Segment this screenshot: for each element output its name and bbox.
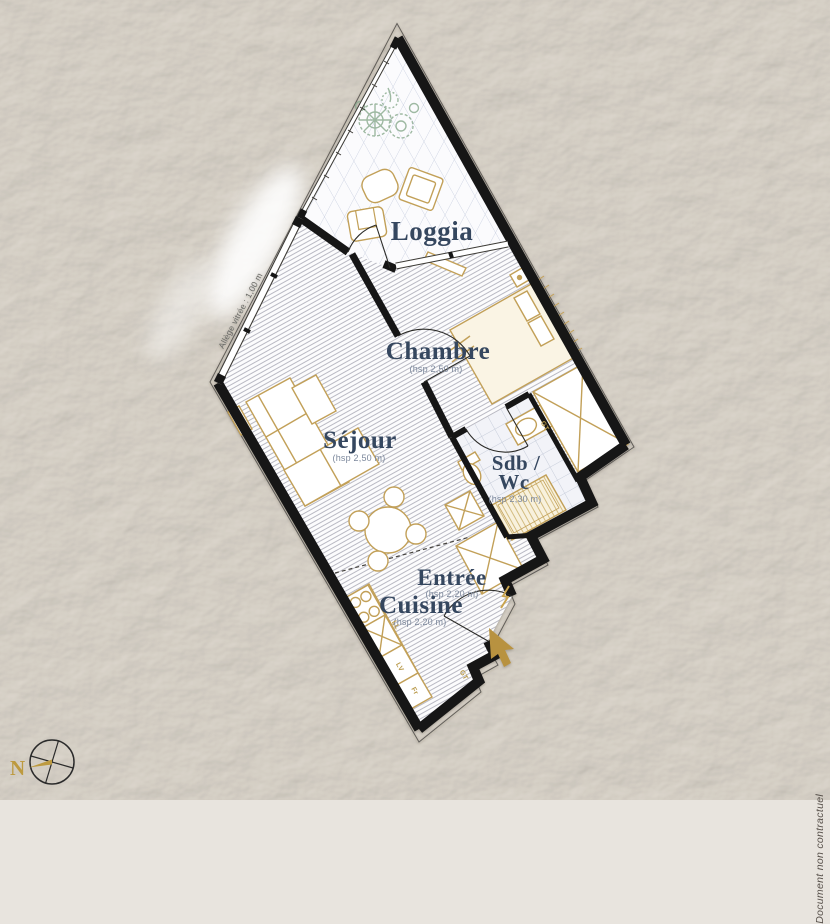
disclaimer-note: Document non contractuel — [814, 794, 826, 924]
loggia-chair — [347, 206, 388, 242]
floorplan-svg: Loggia Chambre (hsp 2,50 m) Séjour (hsp … — [0, 0, 830, 800]
label-chambre: Chambre — [386, 338, 490, 365]
label-cuisine-hsp: (hsp 2,20 m) — [394, 617, 447, 627]
wall-bath-south — [507, 535, 535, 537]
compass-north-label: N — [10, 756, 25, 780]
label-chambre-hsp: (hsp 2,50 m) — [410, 364, 463, 374]
floorplan-canvas: Loggia Chambre (hsp 2,50 m) Séjour (hsp … — [0, 0, 830, 800]
label-loggia: Loggia — [391, 216, 474, 246]
label-sejour-hsp: (hsp 2,50 m) — [333, 453, 386, 463]
label-sdb-line2: Wc — [498, 470, 529, 494]
label-sdb-hsp: (hsp 2,30 m) — [489, 494, 542, 504]
label-cuisine: Cuisine — [379, 592, 463, 619]
label-entree: Entrée — [417, 565, 486, 590]
label-sejour: Séjour — [323, 427, 397, 454]
